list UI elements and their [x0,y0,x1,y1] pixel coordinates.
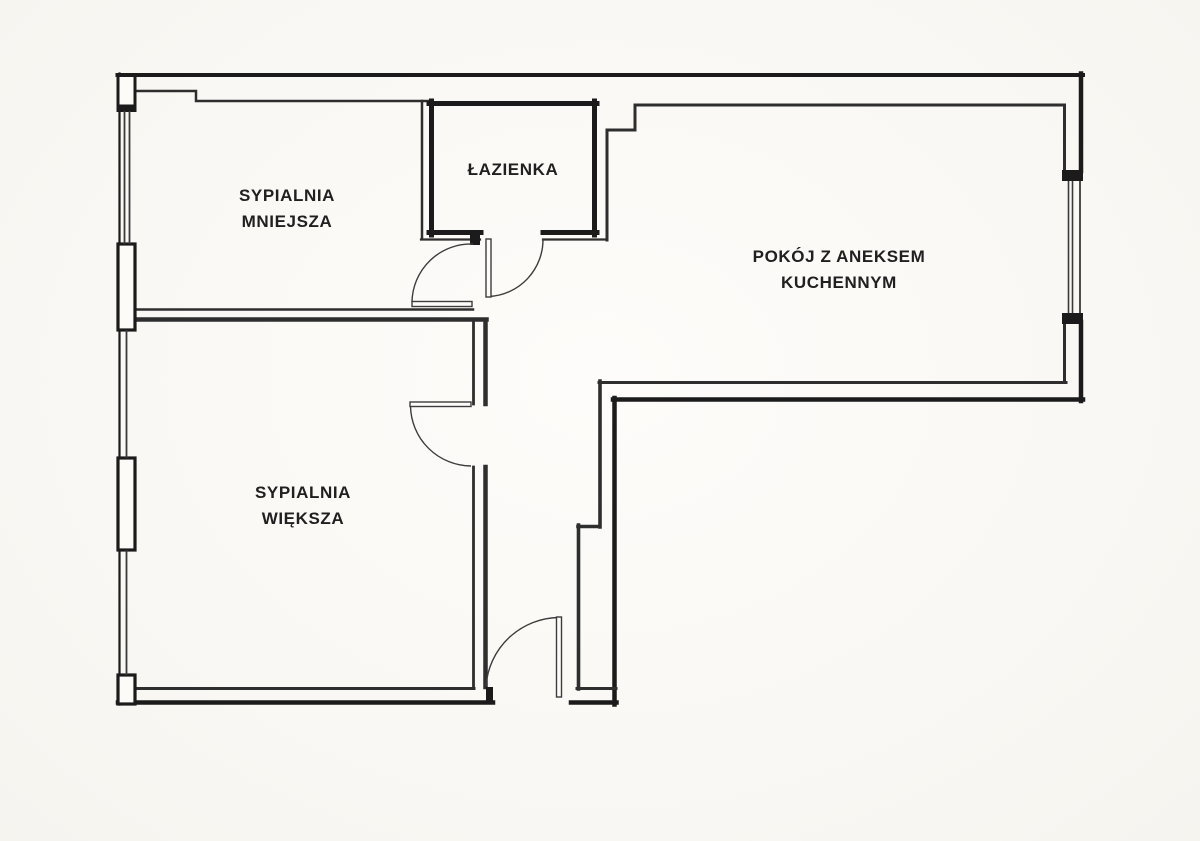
door-arc-bigger-bedroom [411,406,472,466]
room-label-line: POKÓJ Z ANEKSEM [753,244,926,270]
window-cap [1062,170,1083,181]
left-wall-pier-mid2 [118,458,135,550]
wall-hall-right-inner [578,381,600,689]
room-label-sypialnia-mniejsza: SYPIALNIA MNIEJSZA [239,183,335,235]
left-wall-pier-mid1 [118,244,135,330]
door-leaf-bathroom [486,239,491,297]
room-label-line: WIĘKSZA [255,506,351,532]
door-leaf-entrance [557,617,562,697]
window-cap [1062,313,1083,324]
room-label-line: MNIEJSZA [239,209,335,235]
room-label-line: SYPIALNIA [239,183,335,209]
window-left-1-glass [125,111,130,244]
door-leaf-smaller-bedroom [412,302,472,307]
room-label-line: KUCHENNYM [753,270,926,296]
window-cap [118,105,136,112]
floor-plan-page: { "rooms": { "sypialnia_mniejsza": { "li… [0,0,1200,841]
door-arc-bathroom [490,239,544,297]
bathroom-door-jamb-stub [470,231,480,245]
door-arc-smaller-bedroom [412,244,473,302]
room-label-sypialnia-wieksza: SYPIALNIA WIĘKSZA [255,480,351,532]
wall-smallbed-top-inner [134,91,429,101]
room-label-lazienka: ŁAZIENKA [468,157,559,183]
right-wall-window [1062,170,1083,324]
door-arc-entrance [486,618,559,687]
window-right-glass [1069,181,1073,313]
room-label-line: ŁAZIENKA [468,157,559,183]
room-label-pokoj-z-aneksem: POKÓJ Z ANEKSEM KUCHENNYM [753,244,926,296]
door-leaf-bigger-bedroom [410,402,471,407]
floor-plan-drawing [0,0,1200,841]
room-label-line: SYPIALNIA [255,480,351,506]
entrance-left-jamb [486,687,493,703]
wall-main-inner [607,105,1065,381]
left-wall-pier-bottom [118,675,135,704]
